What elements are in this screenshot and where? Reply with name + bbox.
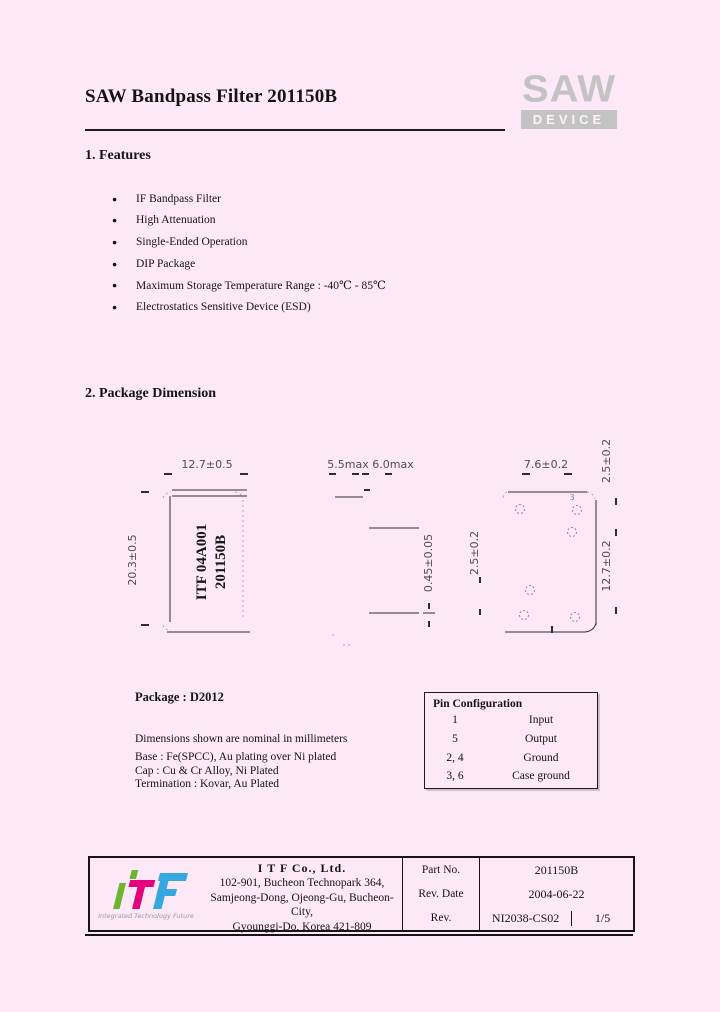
address-line: Samjeong-Dong, Ojeong-Gu, Bucheon-City,	[202, 891, 402, 921]
note-base: Base : Fe(SPCC), Au plating over Ni plat…	[135, 751, 336, 765]
pin-mark	[573, 506, 582, 515]
itf-logo: Integrated Technology Future	[90, 858, 202, 930]
bottom-view-drawing: 7.6±0.2 2.5±0.2 12.7±0.2 3	[503, 439, 616, 633]
pin-mark	[568, 528, 577, 537]
address-line: 102-901, Bucheon Technopark 364,	[202, 876, 402, 891]
feature-item: Single-Ended Operation	[112, 231, 386, 253]
part-no-value: 201150B	[480, 858, 633, 882]
saw-logo-text: SAW	[518, 69, 620, 109]
rev-value-row: NI2038-CS02 1/5	[480, 906, 633, 930]
dim-pin-pitch: 2.5±0.2	[600, 439, 613, 483]
note-cap: Cap : Cu & Cr Alloy, Ni Plated	[135, 765, 336, 779]
note-termination: Termination : Kovar, Au Plated	[135, 778, 336, 792]
bullet-icon	[112, 215, 136, 225]
package-name: Package : D2012	[135, 690, 224, 705]
page-number: 1/5	[572, 911, 633, 926]
dim-cap-height: 5.5max	[327, 458, 369, 471]
datasheet-page: SAW Bandpass Filter 201150B SAW DEVICE 1…	[0, 0, 720, 1012]
pin-row: 3, 6 Case ground	[425, 767, 597, 786]
top-view-drawing: 12.7±0.5 20.3±0.5 ITF 04A001 201150B	[126, 458, 250, 632]
pin-mark	[571, 613, 580, 622]
pin-configuration-table: Pin Configuration 1 Input 5 Output 2, 4 …	[424, 692, 598, 789]
dim-top-height: 20.3±0.5	[126, 534, 139, 585]
footer-title-block: Integrated Technology Future I T F Co., …	[88, 856, 635, 932]
pin-row: 1 Input	[425, 711, 597, 730]
dim-top-width: 12.7±0.5	[181, 458, 232, 471]
bullet-icon	[112, 280, 136, 290]
rev-date-label: Rev. Date	[403, 882, 479, 906]
dim-lead-thickness: 0.45±0.05	[422, 534, 435, 592]
feature-item: DIP Package	[112, 253, 386, 275]
revision-values: 201150B 2004-06-22 NI2038-CS02 1/5	[480, 858, 633, 930]
dim-bottom-width: 7.6±0.2	[524, 458, 568, 471]
footer-divider	[85, 934, 633, 936]
pin-mark	[520, 611, 529, 620]
package-dimension-heading: 2. Package Dimension	[85, 386, 216, 402]
device-logo-bar: DEVICE	[521, 110, 617, 129]
pin-row: 2, 4 Ground	[425, 748, 597, 767]
itf-logo-icon	[103, 869, 189, 911]
package-dimension-drawing: 12.7±0.5 20.3±0.5 ITF 04A001 201150B 5.5…	[80, 425, 640, 660]
pin-row: 5 Output	[425, 730, 597, 749]
title-divider	[85, 129, 505, 131]
address-line: Gyounggi-Do, Korea 421-809	[202, 920, 402, 935]
feature-list: IF Bandpass Filter High Attenuation Sing…	[112, 188, 386, 318]
features-heading: 1. Features	[85, 148, 151, 164]
company-name: I T F Co., Ltd.	[202, 861, 402, 876]
rev-date-value: 2004-06-22	[480, 882, 633, 906]
bullet-icon	[112, 237, 136, 247]
pin-mark	[516, 505, 525, 514]
material-notes: Base : Fe(SPCC), Au plating over Ni plat…	[135, 751, 336, 792]
rev-number: NI2038-CS02	[480, 911, 572, 926]
bullet-icon	[112, 194, 136, 204]
page-title: SAW Bandpass Filter 201150B	[85, 86, 337, 108]
feature-item: IF Bandpass Filter	[112, 188, 386, 210]
pin-configuration-title: Pin Configuration	[425, 693, 597, 711]
pin-mark	[526, 586, 535, 595]
part-no-label: Part No.	[403, 858, 479, 882]
package-marking-line1: ITF 04A001	[194, 524, 210, 601]
package-marking-line2: 201150B	[213, 535, 229, 589]
feature-item: High Attenuation	[112, 210, 386, 232]
company-address: I T F Co., Ltd. 102-901, Bucheon Technop…	[202, 858, 402, 930]
revision-block: Part No. Rev. Date Rev. 201150B 2004-06-…	[402, 858, 633, 930]
side-view-drawing: 5.5max 6.0max 0.45±0.05 2.5±0.2	[327, 458, 481, 645]
pin-number-label: 3	[569, 493, 574, 502]
bullet-icon	[112, 259, 136, 269]
saw-device-logo: SAW DEVICE	[518, 68, 620, 129]
itf-tagline: Integrated Technology Future	[98, 912, 194, 920]
bullet-icon	[112, 302, 136, 312]
dim-lead-length: 2.5±0.2	[468, 531, 481, 575]
dimension-note: Dimensions shown are nominal in millimet…	[135, 733, 347, 745]
revision-labels: Part No. Rev. Date Rev.	[403, 858, 480, 930]
dim-pin-span: 12.7±0.2	[600, 540, 613, 591]
feature-item: Electrostatics Sensitive Device (ESD)	[112, 296, 386, 318]
rev-label: Rev.	[403, 906, 479, 930]
dim-total-height: 6.0max	[372, 458, 414, 471]
feature-item: Maximum Storage Temperature Range : -40℃…	[112, 274, 386, 296]
